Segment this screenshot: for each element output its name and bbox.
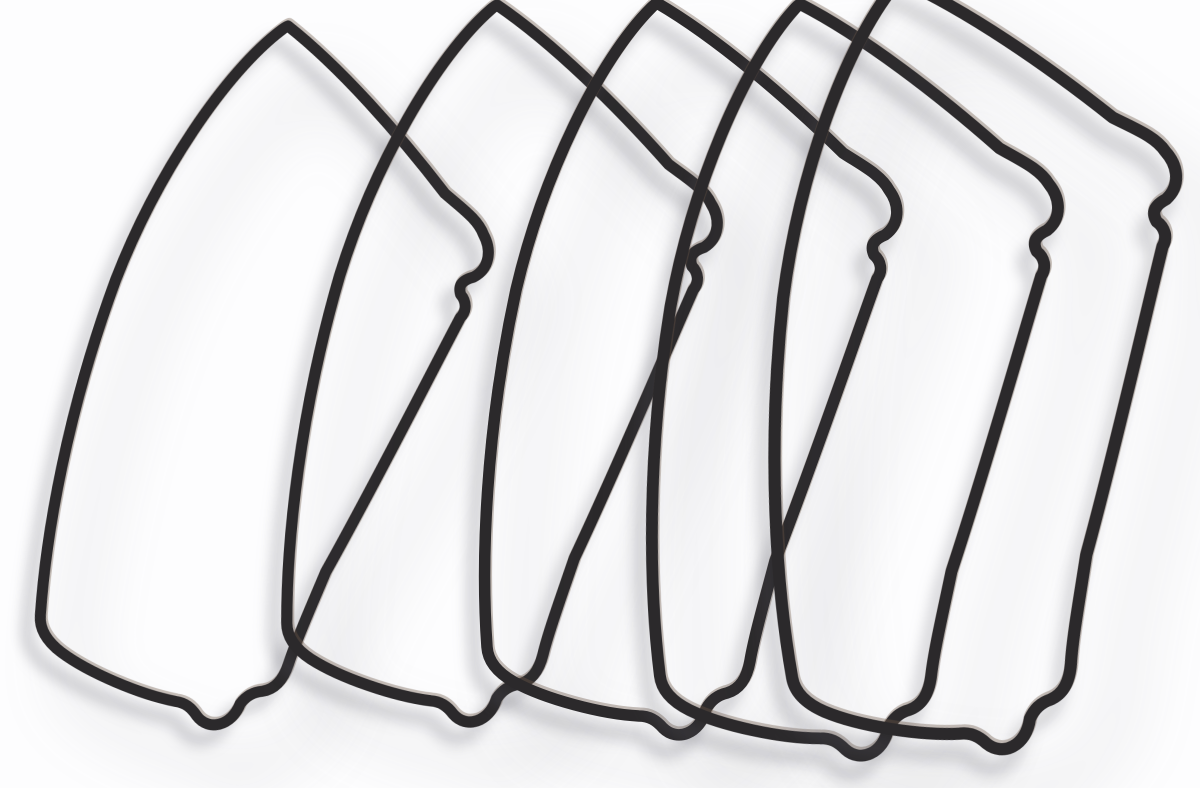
studio-backdrop <box>0 0 1200 788</box>
product-photo <box>0 0 1200 788</box>
product-photo-canvas <box>0 0 1200 788</box>
